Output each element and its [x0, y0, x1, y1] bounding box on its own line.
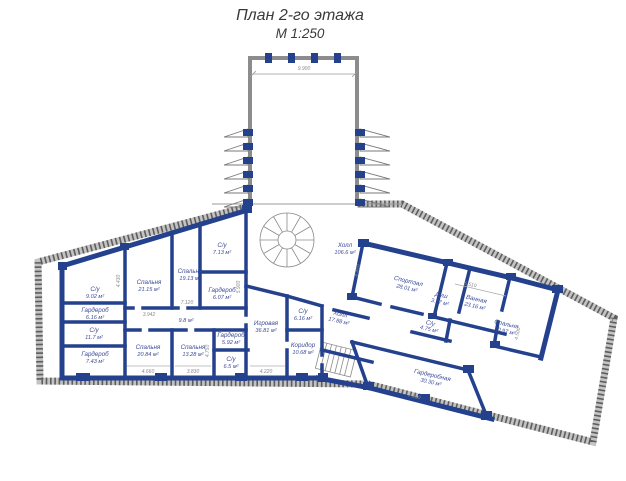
- room-label-koridor: Коридор 10.68 м²: [291, 342, 316, 356]
- svg-text:Спальня: Спальня: [181, 344, 206, 351]
- room-label-garderob-3: Гардероб 6.07 м²: [208, 287, 236, 301]
- floor-plan-drawing: План 2-го этажа М 1:250: [0, 0, 626, 481]
- svg-text:3.77 м²: 3.77 м²: [430, 298, 450, 308]
- svg-text:17.88 м²: 17.88 м²: [328, 317, 351, 328]
- room-label-gym: Спортзал 28.01 м²: [392, 275, 424, 295]
- svg-text:Холл: Холл: [337, 242, 353, 249]
- svg-text:С/у: С/у: [90, 286, 100, 293]
- svg-text:С/у: С/у: [217, 242, 227, 249]
- svg-text:20.84 м²: 20.84 м²: [136, 352, 159, 358]
- room-label-su-4: С/у 6.5 м²: [223, 356, 239, 370]
- svg-text:Гардероб: Гардероб: [81, 307, 109, 314]
- svg-text:4.430: 4.430: [116, 275, 122, 288]
- svg-text:6.16 м²: 6.16 м²: [294, 316, 313, 322]
- room-label-garderob-4: Гардероб 5.92 м²: [217, 332, 245, 346]
- plan-scale: М 1:250: [276, 26, 325, 41]
- svg-text:106.6 м²: 106.6 м²: [334, 250, 356, 256]
- svg-text:Спальня: Спальня: [137, 279, 162, 286]
- room-label-playroom: Игровая 36.81 м²: [254, 320, 279, 334]
- floor-plan-canvas: План 2-го этажа М 1:250: [0, 0, 626, 481]
- room-label-bedroom-4: Спальня 13.28 м²: [181, 344, 206, 358]
- svg-text:7.43 м²: 7.43 м²: [86, 359, 105, 365]
- room-label-wardrobe-big: Гардеробная 30.30 м²: [412, 368, 452, 390]
- svg-text:9.900: 9.900: [298, 66, 311, 72]
- svg-text:Коридор: Коридор: [291, 342, 316, 349]
- svg-text:С/у: С/у: [226, 356, 236, 363]
- room-label-bedroom-3: Спальня 20.84 м²: [136, 344, 161, 358]
- svg-text:11.7 м²: 11.7 м²: [85, 335, 104, 341]
- room-label-bedroom-1: Спальня 21.15 м²: [137, 279, 162, 293]
- svg-text:4.450: 4.450: [354, 264, 363, 278]
- svg-text:Игровая: Игровая: [254, 320, 279, 327]
- svg-text:5.900: 5.900: [236, 281, 242, 294]
- tower-side-columns: [243, 129, 365, 206]
- room-label-garderob-1: Гардероб 6.16 м²: [81, 307, 109, 321]
- svg-text:Гардероб: Гардероб: [208, 287, 236, 294]
- svg-text:7.120: 7.120: [181, 300, 194, 306]
- svg-text:6.07 м²: 6.07 м²: [213, 295, 232, 301]
- svg-text:9.02 м²: 9.02 м²: [86, 294, 105, 300]
- room-label-su-5: С/у 6.16 м²: [294, 308, 313, 322]
- tower-walls: [248, 58, 359, 205]
- svg-text:10.68 м²: 10.68 м²: [292, 350, 314, 356]
- svg-text:Гардероб: Гардероб: [217, 332, 245, 339]
- room-label-hall-main: Холл 106.6 м²: [334, 242, 356, 256]
- svg-text:С/у: С/у: [89, 327, 99, 334]
- svg-text:6.5 м²: 6.5 м²: [223, 364, 239, 370]
- plan-title: План 2-го этажа: [236, 7, 364, 24]
- room-label-bathroom: Ванная 23.16 м²: [463, 294, 489, 313]
- svg-text:3.830: 3.830: [187, 369, 200, 375]
- room-label-su-1: С/у 9.02 м²: [86, 286, 105, 300]
- svg-text:6.16 м²: 6.16 м²: [86, 315, 105, 321]
- room-label-shower: Душ 3.77 м²: [430, 290, 452, 308]
- svg-text:5.92 м²: 5.92 м²: [222, 340, 241, 346]
- svg-text:36.81 м²: 36.81 м²: [255, 328, 277, 334]
- svg-text:9.8 м²: 9.8 м²: [178, 318, 194, 324]
- room-label-corridor-area: 9.8 м²: [178, 318, 194, 324]
- svg-text:Гардероб: Гардероб: [81, 351, 109, 358]
- main-walls: [62, 210, 558, 419]
- svg-text:7.13 м²: 7.13 м²: [213, 250, 232, 256]
- spiral-staircase: [260, 213, 314, 267]
- svg-text:3.942: 3.942: [143, 312, 156, 318]
- room-label-garderob-2: Гардероб 7.43 м²: [81, 351, 109, 365]
- room-label-hall-small: Холл 17.88 м²: [328, 309, 353, 328]
- room-label-su-6: С/у 4.75 м²: [419, 318, 441, 335]
- svg-text:Спальня: Спальня: [136, 344, 161, 351]
- svg-text:19.13 м²: 19.13 м²: [179, 276, 201, 282]
- room-label-su-2: С/у 11.7 м²: [85, 327, 104, 341]
- svg-text:21.15 м²: 21.15 м²: [137, 287, 160, 293]
- svg-text:4.660: 4.660: [142, 369, 155, 375]
- svg-text:4.220: 4.220: [260, 369, 273, 375]
- svg-text:С/у: С/у: [298, 308, 308, 315]
- svg-text:4.750: 4.750: [205, 345, 211, 358]
- svg-text:13.28 м²: 13.28 м²: [182, 352, 204, 358]
- room-label-su-3: С/у 7.13 м²: [213, 242, 232, 256]
- svg-text:Спальня: Спальня: [178, 268, 203, 275]
